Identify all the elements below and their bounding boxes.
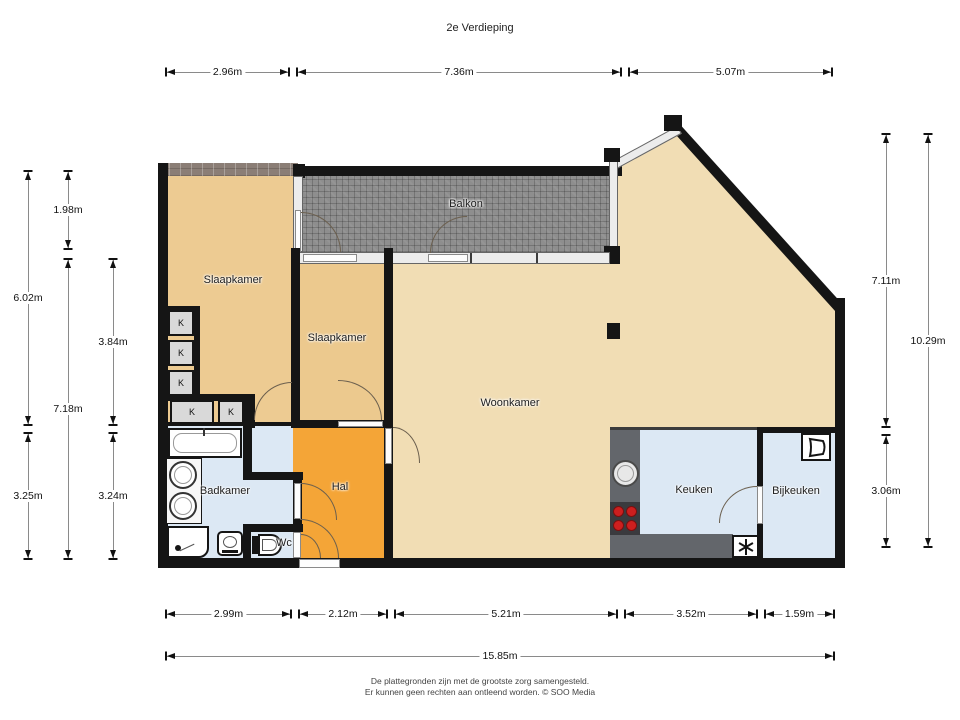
dimension: 1.98m	[60, 170, 76, 250]
washbasin-1	[169, 461, 197, 489]
bathtub-inner	[173, 433, 237, 453]
dimension-label: 1.98m	[50, 204, 85, 216]
dimension: 2.12m	[298, 606, 388, 622]
hall-living-door-leaf	[385, 428, 392, 464]
dimension: 10.29m	[920, 133, 936, 548]
dimension-label: 2.96m	[210, 66, 245, 78]
bathtub	[168, 428, 242, 458]
kitchen-counter-bottom	[610, 534, 733, 558]
bedroom2-door-leaf	[338, 421, 383, 427]
dimension-label: 6.02m	[10, 292, 45, 304]
room-label-balcony: Balkon	[449, 198, 483, 210]
balcony-door-leaf-2	[428, 254, 468, 262]
dimension-label: 3.52m	[673, 608, 708, 620]
closet-label: K	[178, 378, 184, 388]
closet-k-2: K	[168, 340, 194, 366]
window-divider-3	[536, 253, 538, 263]
closet-label: K	[228, 407, 234, 417]
dimension: 3.25m	[20, 432, 36, 560]
room-label-bathroom: Badkamer	[200, 485, 250, 497]
dimension: 5.21m	[394, 606, 618, 622]
floor-plan-page: 2e Verdieping	[0, 0, 960, 720]
room-label-kitchen: Keuken	[675, 484, 712, 496]
toilet-bathroom	[217, 531, 243, 556]
dimension: 3.84m	[105, 258, 121, 426]
wall-wc-left	[243, 524, 251, 560]
wall-bedroom2-living	[384, 248, 393, 428]
dimension-label: 3.06m	[868, 485, 903, 497]
dimension-label: 2.99m	[211, 608, 246, 620]
closet-label: K	[178, 348, 184, 358]
dimension-label: 2.12m	[325, 608, 360, 620]
dimension-label: 7.11m	[869, 275, 903, 287]
wall-right	[835, 298, 845, 568]
utility-sink	[801, 433, 831, 461]
washer-connection-box	[732, 535, 759, 558]
wall-wc-top	[243, 524, 303, 532]
dimension-label: 1.59m	[782, 608, 817, 620]
dimension: 3.52m	[624, 606, 758, 622]
dimension-label: 10.29m	[907, 335, 948, 347]
dimension: 7.11m	[878, 133, 894, 428]
shower	[167, 526, 209, 558]
footer-line-2: Er kunnen geen rechten aan ontleend word…	[0, 687, 960, 698]
wall-bedroom1-bedroom2	[291, 248, 300, 428]
room-label-wc: Wc	[276, 537, 292, 549]
wall-bottom	[158, 558, 845, 568]
living-column	[607, 323, 620, 339]
utility-sink-icon	[803, 435, 829, 459]
dimension: 6.02m	[20, 170, 36, 426]
top-hatched-strip	[158, 163, 298, 176]
closet-k-1: K	[168, 310, 194, 336]
room-label-living: Woonkamer	[480, 397, 539, 409]
closet-k-5: K	[218, 400, 244, 424]
dimension: 3.24m	[105, 432, 121, 560]
dimension: 2.96m	[165, 64, 290, 80]
wall-bathroom-hall-vert	[243, 398, 252, 480]
closet-label: K	[178, 318, 184, 328]
dimension: 5.07m	[628, 64, 833, 80]
dimension: 7.18m	[60, 258, 76, 560]
wall-balcony-top	[295, 166, 622, 176]
room-label-bedroom-2: Slaapkamer	[308, 332, 367, 344]
dimension-label: 3.25m	[10, 490, 45, 502]
wall-closet-column-right	[194, 306, 200, 401]
dimension: 1.59m	[764, 606, 835, 622]
dimension: 3.06m	[878, 434, 894, 548]
room-label-bedroom-1: Slaapkamer	[204, 274, 263, 286]
window-divider-2	[470, 253, 472, 263]
dimension-label: 3.84m	[95, 336, 130, 348]
corner-block-2	[604, 148, 620, 162]
washbasin-2	[169, 492, 197, 520]
corner-block-apex	[664, 115, 682, 131]
page-title: 2e Verdieping	[0, 22, 960, 34]
stove	[610, 502, 640, 535]
dimension-label: 5.21m	[488, 608, 523, 620]
front-door-leaf	[299, 559, 340, 568]
utility-door-leaf	[757, 486, 763, 524]
room-label-hall: Hal	[332, 481, 349, 493]
room-label-utility: Bijkeuken	[772, 485, 820, 497]
dimension: 2.99m	[165, 606, 292, 622]
footer-disclaimer: De plattegronden zijn met de grootste zo…	[0, 676, 960, 699]
dimension-label: 7.18m	[50, 403, 85, 415]
closet-k-4: K	[170, 400, 214, 424]
dimension-label: 5.07m	[713, 66, 748, 78]
dimension: 15.85m	[165, 648, 835, 664]
closet-label: K	[189, 407, 195, 417]
bathtub-faucet	[203, 428, 205, 436]
dimension: 7.36m	[296, 64, 622, 80]
dimension-label: 7.36m	[441, 66, 476, 78]
bathroom-door-leaf	[294, 483, 301, 519]
window-balcony-right	[609, 160, 618, 252]
dimension-label: 15.85m	[479, 650, 520, 662]
kitchen-sink	[612, 460, 639, 487]
closet-k-3: K	[168, 370, 194, 396]
balcony-door-leaf-1	[303, 254, 357, 262]
dimension-label: 3.24m	[95, 490, 130, 502]
footer-line-1: De plattegronden zijn met de grootste zo…	[0, 676, 960, 687]
